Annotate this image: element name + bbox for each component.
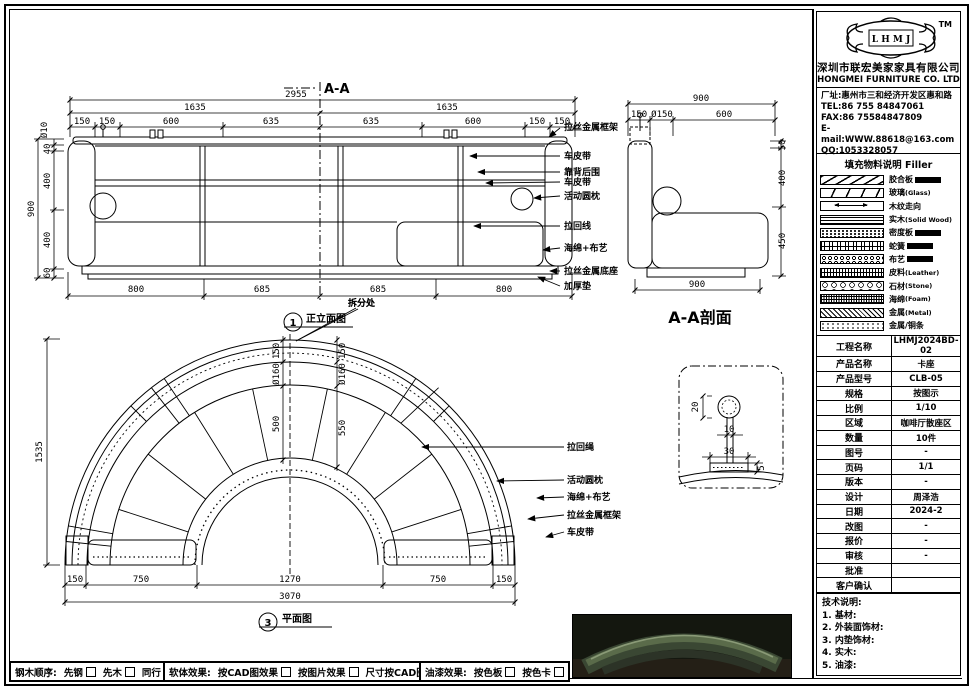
tech-note-item: 2. 外装面饰材:	[822, 622, 955, 635]
section-title: A-A剖面	[668, 308, 731, 327]
checkbox	[125, 667, 135, 677]
table-row: 区域咖啡厅散座区	[817, 416, 960, 431]
dim: 10	[724, 425, 735, 435]
checkbox	[554, 667, 564, 677]
dim: 40	[43, 144, 53, 155]
cad-drawing-canvas: 2955 1635 1635 150 150 600 635 635 600 1…	[0, 0, 812, 688]
option-label: 先木	[103, 665, 122, 679]
fax: FAX:86 75584847809	[821, 113, 956, 124]
dim: 2955	[285, 90, 307, 100]
legend-row: 实木(Solid Wood)	[820, 213, 957, 226]
dim: 150	[67, 575, 83, 585]
elevation-dimensions	[34, 96, 578, 300]
dim: 900	[693, 94, 709, 104]
company-name-en: HONGMEI FURNITURE CO. LTD	[817, 75, 960, 85]
table-row: 报价-	[817, 534, 960, 549]
callout: 拉丝金属框架	[567, 509, 621, 521]
hatch-spring-icon	[820, 241, 884, 251]
section-cut-label: A-A	[324, 82, 350, 97]
callout: 车皮带	[567, 526, 594, 538]
product-photo	[572, 614, 792, 678]
dim: 450	[778, 233, 788, 249]
dim: 150	[631, 110, 647, 120]
legend-row: 金属(Metal)	[820, 306, 957, 319]
table-row: 页码1/1	[817, 460, 960, 475]
checkbox	[349, 667, 359, 677]
front-elevation-view	[68, 82, 572, 302]
table-row: 数量10件	[817, 431, 960, 446]
callout: 拉丝金属底座	[564, 265, 618, 277]
dim: 685	[370, 285, 386, 295]
checkbox	[281, 667, 291, 677]
hatch-stone-icon	[820, 281, 884, 291]
option-label: 按色板	[474, 665, 503, 679]
dim: 150	[272, 343, 282, 359]
callout: 活动圆枕	[564, 190, 600, 202]
tech-notes-title: 技术说明:	[822, 597, 955, 610]
dim: 600	[465, 117, 481, 127]
callout: 活动圆枕	[567, 474, 603, 486]
dim: 750	[430, 575, 446, 585]
dim: 150	[338, 343, 348, 359]
callout: 拉丝金属框架	[564, 121, 618, 133]
table-row: 审核-	[817, 549, 960, 564]
hatch-foam-icon	[820, 294, 884, 304]
dim: 1635	[184, 103, 206, 113]
legend-row: 石材(Stone)	[820, 279, 957, 292]
dim: 1635	[436, 103, 458, 113]
company-header: TM L H M J 深圳市联宏美家家具有限公司 HONGMEI FURNITU…	[817, 12, 960, 88]
hatch-mdf-icon	[820, 228, 884, 238]
dim: 30	[724, 447, 735, 457]
label-bar	[907, 243, 933, 249]
dim: 750	[133, 575, 149, 585]
table-row: 规格按图示	[817, 387, 960, 402]
brand-crest-icon: L H M J	[841, 16, 941, 60]
dim: 50	[778, 140, 788, 151]
legend-row: 密度板	[820, 226, 957, 239]
callout: 拉回绳	[567, 441, 594, 453]
tech-note-item: 5. 油漆:	[822, 660, 955, 673]
legend-row: 布艺	[820, 253, 957, 266]
factory-address: 厂址:惠州市三和经济开发区惠和路	[821, 91, 956, 102]
elevation-dim-labels: 2955 1635 1635 150 150 600 635 635 600 1…	[27, 82, 570, 295]
logo-text: L H M J	[872, 35, 910, 45]
callout: 加厚垫	[563, 280, 591, 292]
callout: 车皮带	[564, 150, 591, 162]
table-row: 产品名称卡座	[817, 357, 960, 372]
plan-callouts: 拉回绳 活动圆枕 海绵+布艺 拉丝金属框架 车皮带	[422, 441, 621, 538]
hatch-plywood-icon	[820, 175, 884, 185]
table-row: 比例1/10	[817, 401, 960, 416]
table-row: 改图-	[817, 519, 960, 534]
callout: 车皮带	[564, 176, 591, 188]
hatch-solid-wood-icon	[820, 215, 884, 225]
legend-row: 海绵(Foam)	[820, 293, 957, 306]
callout: 海绵+布艺	[564, 242, 608, 254]
dim: 800	[128, 285, 144, 295]
split-label: 拆分处	[348, 297, 376, 309]
option-label: 按CAD图效果	[218, 665, 278, 679]
hatch-brass-icon	[820, 321, 884, 331]
section-view	[628, 113, 768, 277]
dim: 60	[43, 268, 53, 279]
order-options-steel-wood: 钢木顺序: 先钢 先木 同行	[9, 661, 171, 682]
table-row: 工程名称LHMJ2024BD-02	[817, 336, 960, 357]
order-options-upholstery: 软体效果: 按CAD图效果 按图片效果 尺寸按CAD图纸	[163, 661, 427, 682]
dim: 800	[496, 285, 512, 295]
plan-dim-labels: 1535 150 750 1270 750 150 3070 150 Ø160 …	[35, 343, 512, 602]
dim: 400	[43, 232, 53, 248]
group-label: 软体效果:	[169, 665, 211, 679]
dim: 600	[163, 117, 179, 127]
hatch-leather-icon	[820, 268, 884, 278]
filler-legend: 填充物料说明 Filler 胶合板 玻璃(Glass) 木纹走向 实木(Soli…	[817, 154, 960, 336]
dim: Ø150	[651, 109, 673, 120]
dim: 5	[757, 465, 767, 470]
plan-view	[65, 334, 515, 576]
hatch-fabric-icon	[820, 254, 884, 264]
tech-note-item: 1. 基材:	[822, 610, 955, 623]
callout: 拉回线	[564, 220, 591, 232]
order-options-paint: 油漆效果: 按色板 按色卡	[419, 661, 570, 682]
view-title: 平面图	[282, 613, 312, 625]
option-label: 按色卡	[522, 665, 551, 679]
legend-row: 皮料(Leather)	[820, 266, 957, 279]
checkbox	[505, 667, 515, 677]
section-dim-labels: 900 150 Ø150 600 50 400 450 900 A-A剖面	[631, 94, 788, 327]
dim: 1270	[279, 575, 301, 585]
view-title: 正立面图	[306, 312, 346, 325]
label-bar	[907, 256, 933, 262]
table-row: 产品型号CLB-05	[817, 372, 960, 387]
tech-note-item: 3. 内垫饰材:	[822, 635, 955, 648]
dim: 635	[263, 117, 279, 127]
dim: 635	[363, 117, 379, 127]
hatch-metal-icon	[820, 308, 884, 318]
callout: 海绵+布艺	[567, 491, 611, 503]
table-row: 图号-	[817, 446, 960, 461]
wood-grain-arrow-icon	[820, 201, 884, 211]
dim: 150	[99, 117, 115, 127]
title-block-panel: TM L H M J 深圳市联宏美家家具有限公司 HONGMEI FURNITU…	[812, 9, 963, 678]
group-label: 油漆效果:	[425, 665, 467, 679]
callout: 靠背后围	[564, 166, 600, 178]
dim: 3070	[279, 592, 301, 602]
legend-row: 胶合板	[820, 173, 957, 186]
dim: Ø160	[337, 363, 348, 385]
dim: 900	[689, 280, 705, 290]
dim: 900	[27, 201, 37, 217]
dim: 600	[716, 110, 732, 120]
tech-note-item: 4. 实木:	[822, 647, 955, 660]
legend-title: 填充物料说明 Filler	[820, 157, 957, 171]
drawing-info-table: 工程名称LHMJ2024BD-02 产品名称卡座 产品型号CLB-05 规格按图…	[817, 336, 960, 594]
company-name-cn: 深圳市联宏美家家具有限公司	[817, 60, 960, 75]
option-label: 按图片效果	[298, 665, 346, 679]
email: E-mail:WWW.88618@163.com	[821, 124, 956, 146]
legend-row: 木纹走向	[820, 200, 957, 213]
dim: Ø10	[39, 122, 50, 138]
dim: 150	[74, 117, 90, 127]
table-row: 设计周泽浩	[817, 490, 960, 505]
dim: 1535	[35, 441, 45, 463]
label-bar	[915, 177, 941, 183]
option-label: 先钢	[64, 665, 83, 679]
group-label: 钢木顺序:	[15, 665, 57, 679]
dim: Ø160	[271, 363, 282, 385]
tel: TEL:86 755 84847061	[821, 102, 956, 113]
dim: 150	[496, 575, 512, 585]
dim: 20	[691, 402, 701, 413]
option-label: 同行	[142, 665, 161, 679]
dim: 400	[778, 170, 788, 186]
legend-row: 金属/铜条	[820, 319, 957, 332]
hatch-glass-icon	[820, 188, 884, 198]
table-row: 日期2024-2	[817, 505, 960, 520]
table-row: 批准	[817, 564, 960, 579]
company-contact: 厂址:惠州市三和经济开发区惠和路 TEL:86 755 84847061 FAX…	[817, 88, 960, 154]
label-bar	[915, 230, 941, 236]
legend-row: 玻璃(Glass)	[820, 186, 957, 199]
table-row: 版本-	[817, 475, 960, 490]
table-row: 客户确认	[817, 578, 960, 593]
dim: 500	[272, 416, 282, 432]
checkbox	[86, 667, 96, 677]
sofa-photo-image	[573, 615, 791, 677]
detail-view: 20 10 30 5	[679, 366, 783, 488]
dim: 150	[529, 117, 545, 127]
tech-notes: 技术说明: 1. 基材: 2. 外装面饰材: 3. 内垫饰材: 4. 实木: 5…	[817, 594, 960, 675]
legend-row: 蛇簧	[820, 240, 957, 253]
dim: 550	[338, 420, 348, 436]
dim: 400	[43, 173, 53, 189]
dim: 685	[254, 285, 270, 295]
